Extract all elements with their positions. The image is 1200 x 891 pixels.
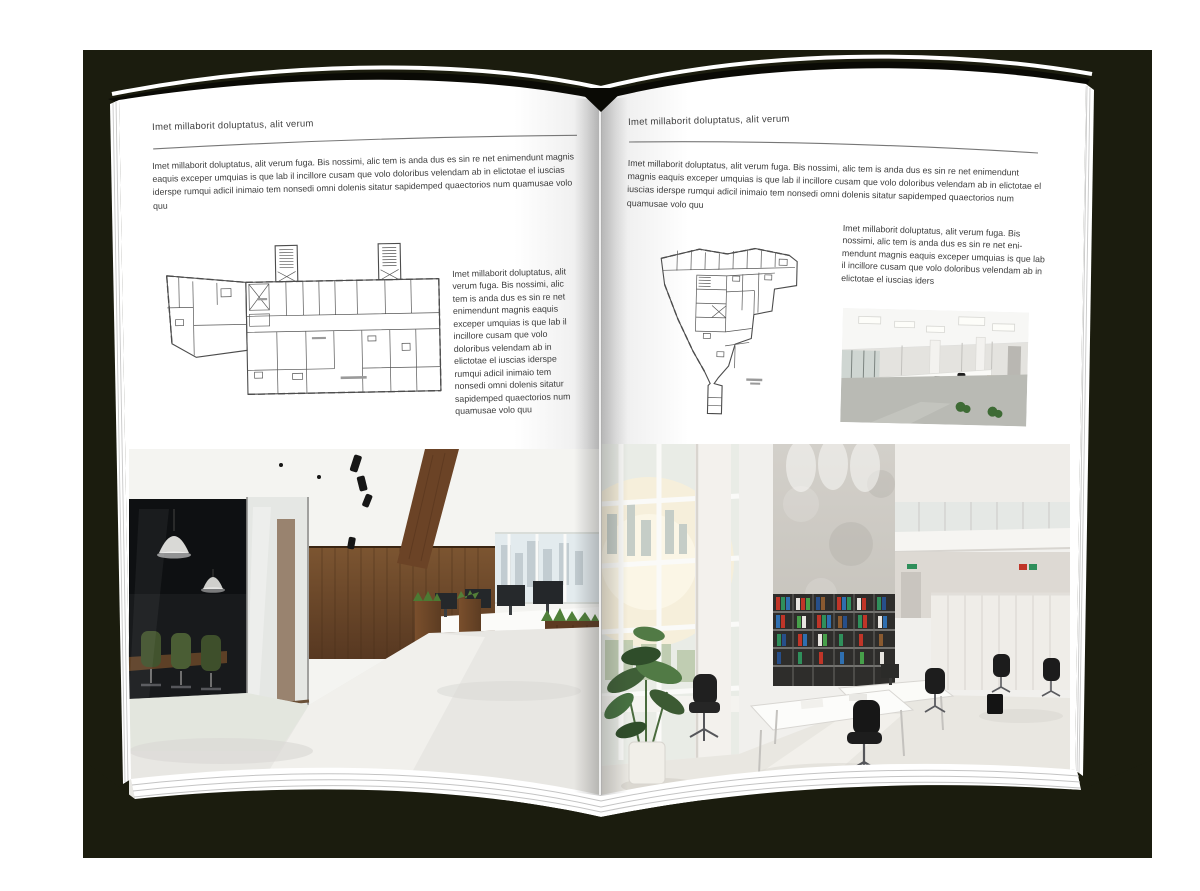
floor-plan-right-labels (746, 378, 762, 384)
floor-plan-right-rooms (660, 247, 796, 407)
wall-spotlights (786, 444, 880, 492)
floor-plan-left (160, 235, 448, 415)
left-page-caption: Imet millaborit doluptatus, alit verum f… (452, 265, 577, 418)
photo-office-small-art (840, 308, 1029, 427)
photo-office-dark-wood-art (129, 449, 599, 800)
photo-office-bright (601, 444, 1070, 800)
left-intro-paragraph: Imet millaborit doluptatus, alit verum f… (152, 150, 577, 212)
right-intro-paragraph: Imet millaborit doluptatus, alit verum f… (627, 157, 1044, 220)
floor-plan-left-labels (257, 296, 367, 381)
right-page-caption: Imet millaborit doluptatus, alit verum f… (841, 222, 1050, 291)
floor-plan-right (645, 226, 810, 425)
right-kicker-rule (628, 139, 1040, 157)
floor-plan-left-rooms (166, 247, 441, 396)
magazine-mockup: Imet millaborit doluptatus, alit verum I… (0, 0, 1200, 891)
photo-office-dark-wood (129, 449, 599, 800)
photo-office-bright-art (601, 444, 1070, 800)
photo-office-small (840, 308, 1029, 427)
bookshelf (773, 594, 895, 686)
